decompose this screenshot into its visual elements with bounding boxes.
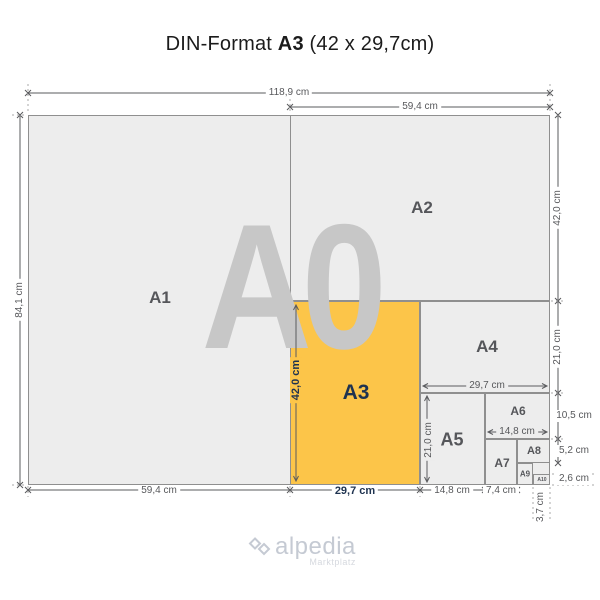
label-a7: A7 (494, 456, 509, 470)
dim-a6-height: 10,5 cm (553, 410, 595, 422)
dim-a3-height: 42,0 cm (290, 357, 302, 403)
dim-a9-width: 3,7 cm (535, 489, 547, 525)
label-a4: A4 (476, 337, 498, 357)
dim-a5-width: 14,8 cm (431, 485, 473, 497)
dim-a5-height: 21,0 cm (423, 419, 435, 461)
dim-total-width: 118,9 cm (266, 87, 312, 99)
dim-a2-height: 42,0 cm (552, 187, 564, 229)
label-a1: A1 (149, 288, 171, 308)
label-a10: A10 (537, 477, 546, 483)
title-prefix: DIN-Format (166, 33, 272, 55)
dim-a10-height: 2,6 cm (556, 473, 592, 485)
dim-a7-width: 7,4 cm (483, 485, 519, 497)
dim-total-height: 84,1 cm (14, 279, 26, 321)
title-size: (42 x 29,7cm) (310, 33, 435, 55)
alpedia-diamonds-icon (248, 535, 271, 558)
label-a5: A5 (440, 430, 463, 451)
label-a9: A9 (520, 470, 530, 479)
label-a6: A6 (510, 404, 525, 418)
din-format-infographic: DIN-Format A3 (42 x 29,7cm) A0 A1 A2 A3 … (0, 0, 600, 600)
label-a2: A2 (411, 198, 433, 218)
label-a8: A8 (527, 445, 541, 457)
page-title: DIN-Format A3 (42 x 29,7cm) (0, 33, 600, 56)
dim-a3-width: 29,7 cm (332, 485, 378, 497)
label-a3: A3 (343, 381, 370, 405)
dim-a1-width: 59,4 cm (138, 485, 180, 497)
dim-a4-width: 29,7 cm (466, 380, 508, 392)
dim-a8-height: 5,2 cm (556, 445, 592, 457)
dim-a6-width: 14,8 cm (496, 426, 538, 438)
alpedia-logo: alpedia Marktplatz (248, 535, 356, 567)
dim-a4-height: 21,0 cm (552, 326, 564, 368)
dim-half-width: 59,4 cm (399, 101, 441, 113)
title-format: A3 (278, 33, 304, 55)
logo-name: alpedia (275, 535, 356, 559)
